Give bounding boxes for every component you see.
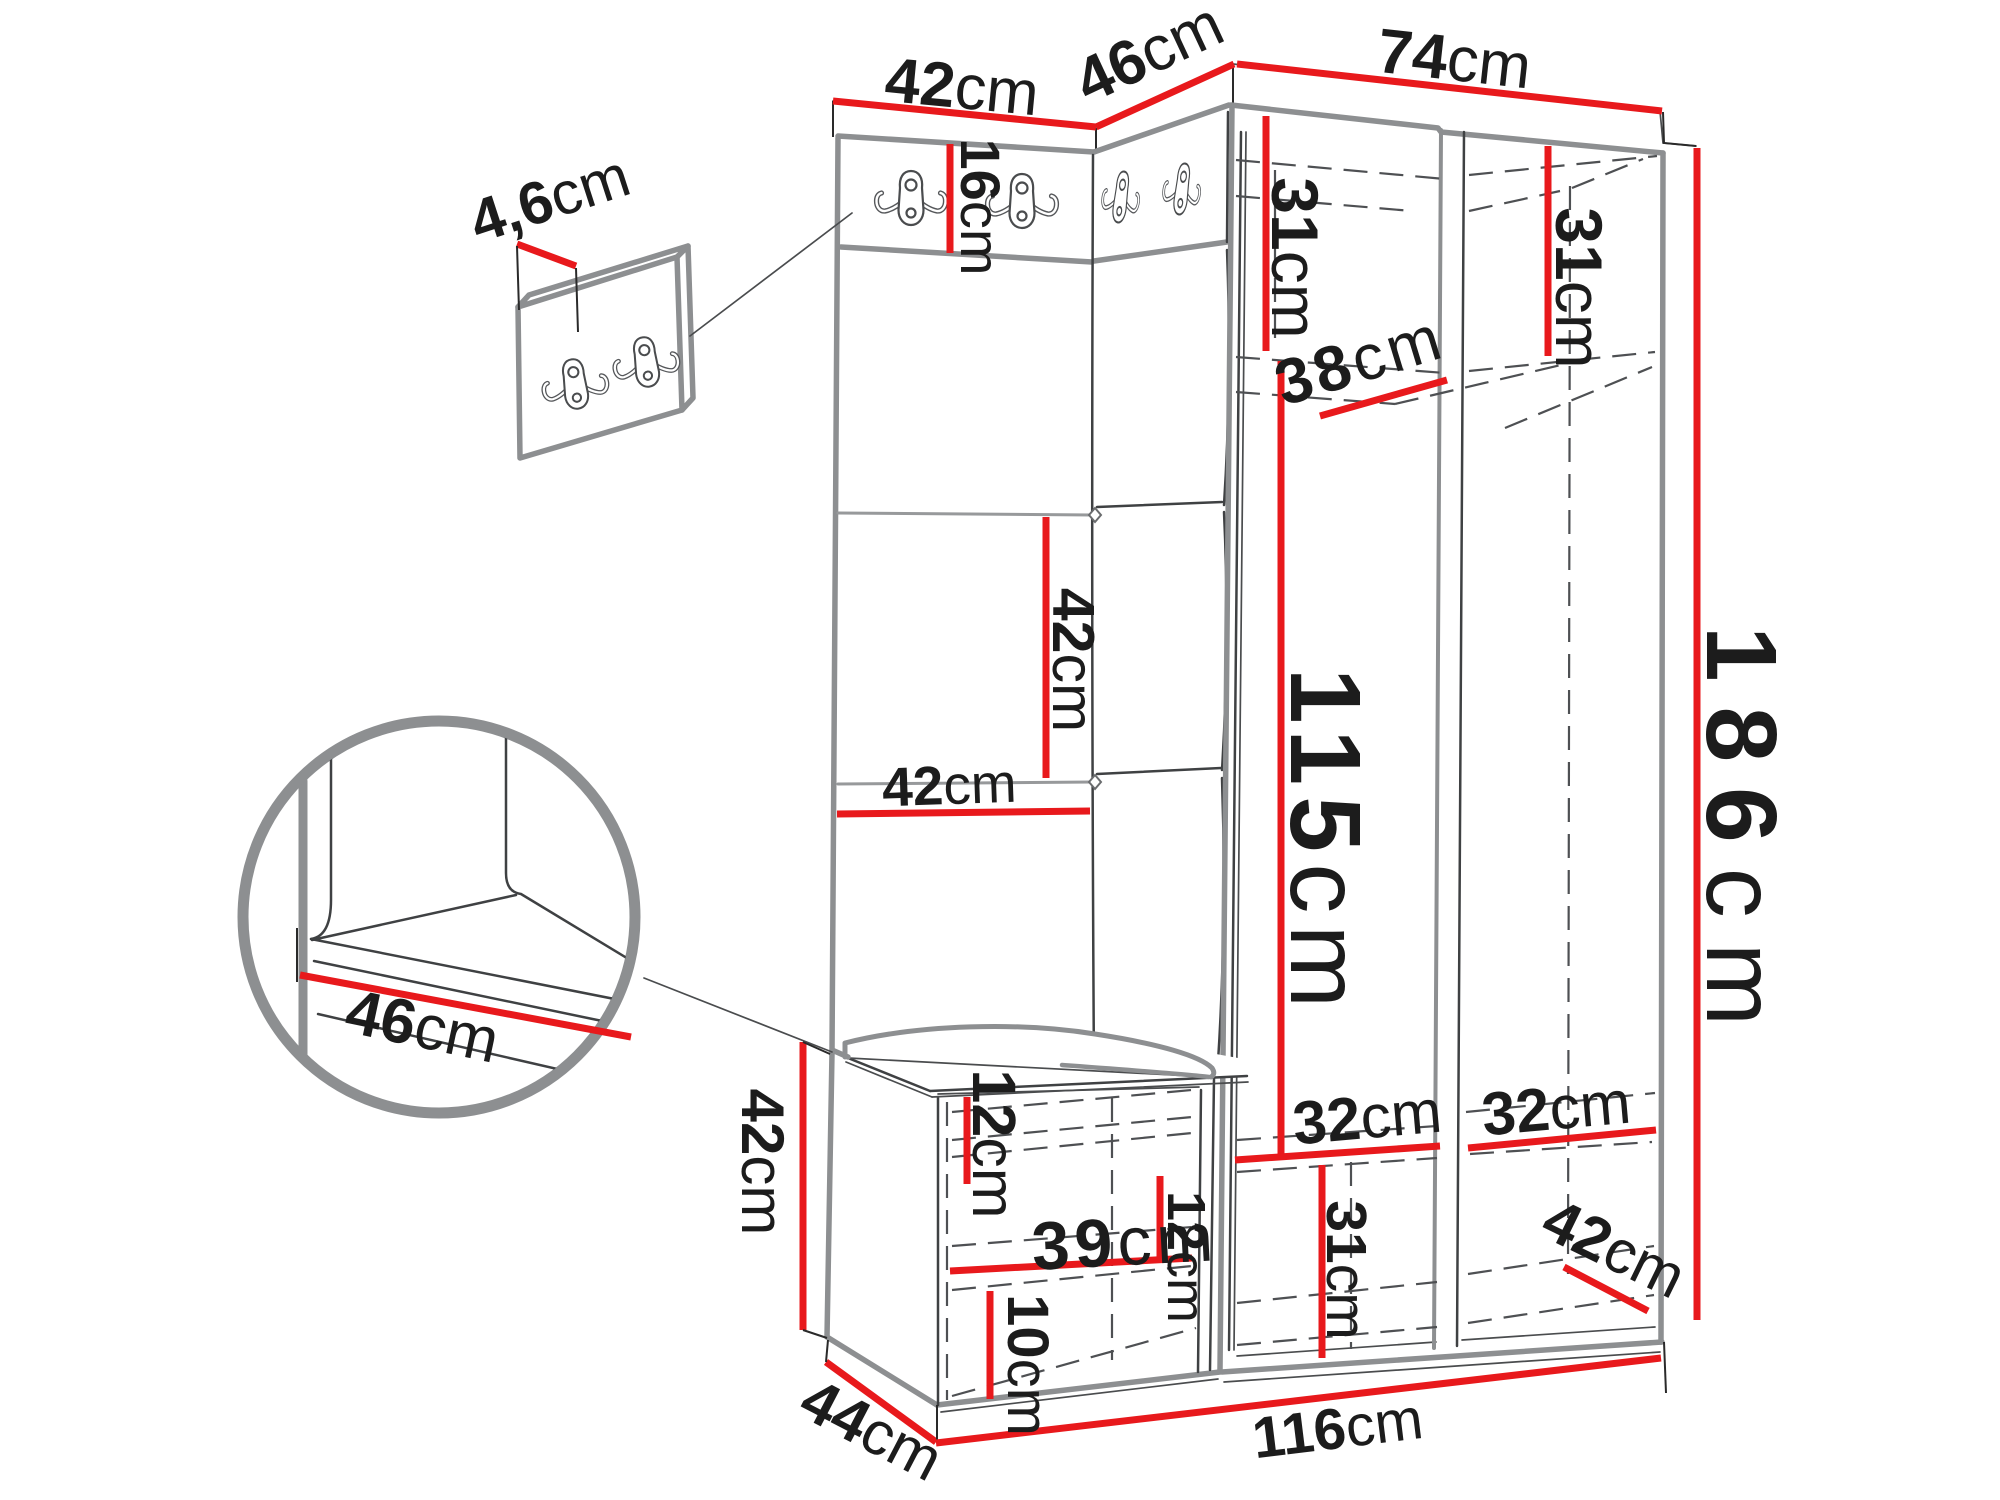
svg-text:31cm: 31cm <box>1314 1200 1378 1339</box>
svg-text:31cm: 31cm <box>1258 177 1332 338</box>
svg-text:10cm: 10cm <box>995 1294 1060 1436</box>
svg-text:32cm: 32cm <box>1479 1068 1634 1149</box>
svg-text:31cm: 31cm <box>1542 207 1616 368</box>
svg-text:12cm: 12cm <box>1156 1191 1216 1323</box>
svg-text:42cm: 42cm <box>1040 588 1106 732</box>
svg-text:32cm: 32cm <box>1290 1077 1445 1158</box>
svg-text:42cm: 42cm <box>729 1089 796 1236</box>
svg-text:12cm: 12cm <box>960 1069 1028 1218</box>
svg-text:16cm: 16cm <box>949 139 1012 276</box>
svg-text:42cm: 42cm <box>882 45 1042 129</box>
svg-text:42cm: 42cm <box>881 752 1018 819</box>
